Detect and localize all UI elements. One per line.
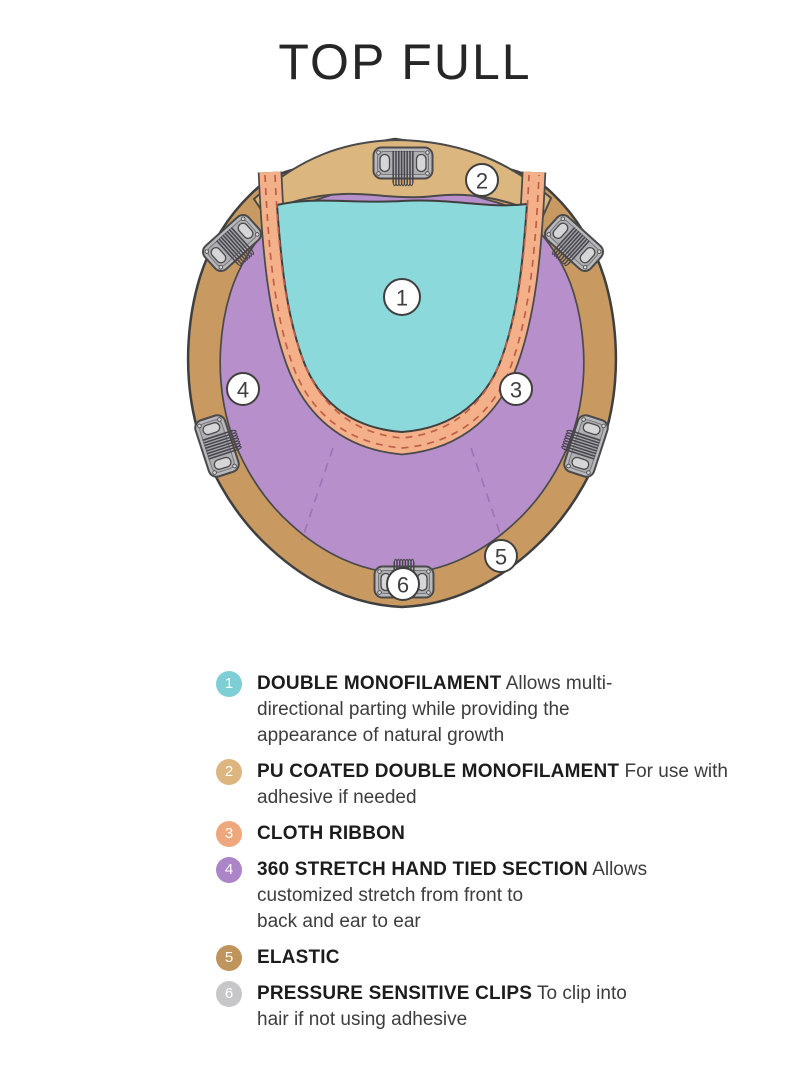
legend-badge: 1 bbox=[216, 671, 242, 697]
legend-text: PRESSURE SENSITIVE CLIPS To clip intohai… bbox=[257, 981, 627, 1033]
page: TOP FULL bbox=[0, 0, 810, 1080]
callout-4: 4 bbox=[227, 373, 259, 405]
legend-badge: 3 bbox=[216, 821, 242, 847]
legend-item: 2PU COATED DOUBLE MONOFILAMENT For use w… bbox=[216, 759, 776, 811]
legend-badge: 2 bbox=[216, 759, 242, 785]
legend-term: PRESSURE SENSITIVE CLIPS bbox=[257, 983, 532, 1004]
legend-term: 360 STRETCH HAND TIED SECTION bbox=[257, 859, 588, 880]
callout-4-number: 4 bbox=[237, 378, 249, 403]
cap-construction-diagram: 1 2 3 4 5 6 bbox=[0, 0, 810, 630]
callout-5-number: 5 bbox=[495, 545, 507, 570]
legend-badge: 4 bbox=[216, 857, 242, 883]
callout-1: 1 bbox=[384, 279, 420, 315]
legend-desc-line: customized stretch from front to bbox=[257, 885, 523, 906]
legend-term: CLOTH RIBBON bbox=[257, 823, 405, 844]
legend-term: DOUBLE MONOFILAMENT bbox=[257, 673, 501, 694]
callout-2-number: 2 bbox=[476, 169, 488, 194]
legend-desc-line: Allows multi- bbox=[506, 673, 613, 694]
callout-1-number: 1 bbox=[396, 286, 408, 311]
legend-term: PU COATED DOUBLE MONOFILAMENT bbox=[257, 761, 619, 782]
legend-desc-line: back and ear to ear bbox=[257, 911, 421, 932]
callout-6-number: 6 bbox=[397, 573, 409, 598]
legend-desc-line: directional parting while providing the bbox=[257, 699, 570, 720]
legend-text: DOUBLE MONOFILAMENT Allows multi-directi… bbox=[257, 671, 612, 749]
legend-badge: 6 bbox=[216, 981, 242, 1007]
legend-desc-line: appearance of natural growth bbox=[257, 725, 504, 746]
legend-item: 4360 STRETCH HAND TIED SECTION Allowscus… bbox=[216, 857, 776, 935]
callout-3-number: 3 bbox=[510, 378, 522, 403]
legend-badge: 5 bbox=[216, 945, 242, 971]
legend-desc-line: To clip into bbox=[537, 983, 627, 1004]
legend-term: ELASTIC bbox=[257, 947, 340, 968]
callout-3: 3 bbox=[500, 373, 532, 405]
legend-item: 5ELASTIC bbox=[216, 945, 776, 971]
legend-text: ELASTIC bbox=[257, 945, 340, 971]
legend-item: 6PRESSURE SENSITIVE CLIPS To clip intoha… bbox=[216, 981, 776, 1033]
legend-item: 1DOUBLE MONOFILAMENT Allows multi-direct… bbox=[216, 671, 776, 749]
legend-text: PU COATED DOUBLE MONOFILAMENT For use wi… bbox=[257, 759, 776, 811]
legend: 1DOUBLE MONOFILAMENT Allows multi-direct… bbox=[216, 671, 776, 1043]
legend-desc-line: hair if not using adhesive bbox=[257, 1009, 467, 1030]
legend-text: 360 STRETCH HAND TIED SECTION Allowscust… bbox=[257, 857, 647, 935]
legend-text: CLOTH RIBBON bbox=[257, 821, 405, 847]
legend-desc-line: Allows bbox=[592, 859, 647, 880]
callout-2: 2 bbox=[466, 164, 498, 196]
legend-item: 3CLOTH RIBBON bbox=[216, 821, 776, 847]
callout-5: 5 bbox=[485, 540, 517, 572]
callout-6: 6 bbox=[387, 568, 419, 600]
